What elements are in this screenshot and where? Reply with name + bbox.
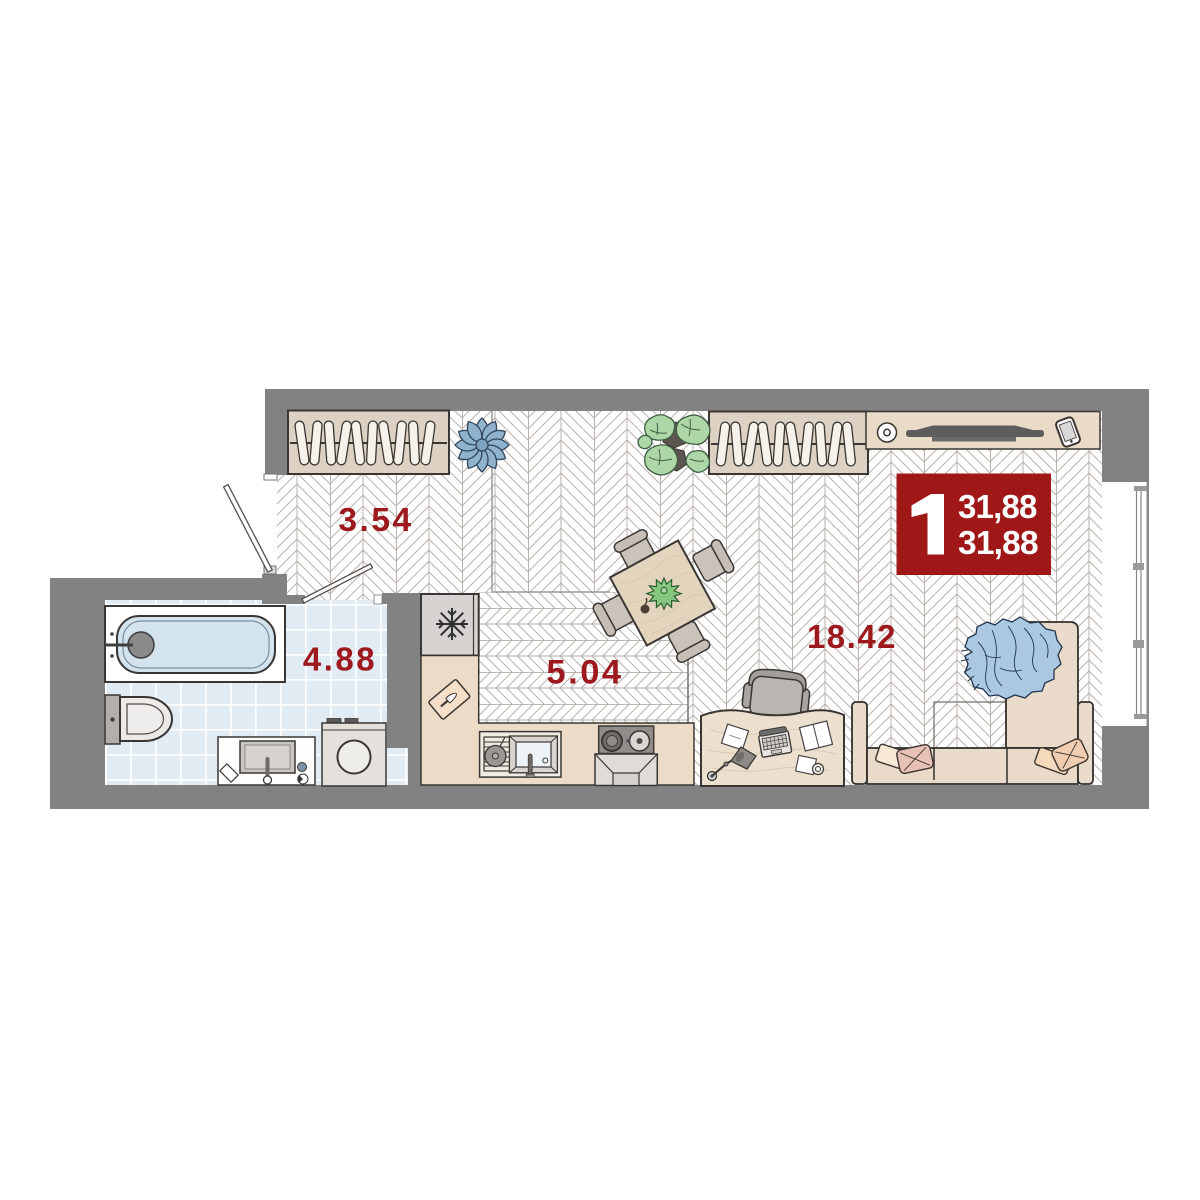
svg-text:31,88: 31,88 [958, 525, 1038, 562]
svg-text:18.42: 18.42 [807, 618, 897, 655]
svg-text:31,88: 31,88 [958, 488, 1037, 525]
svg-text:5.04: 5.04 [546, 654, 623, 692]
svg-text:4.88: 4.88 [303, 641, 377, 678]
svg-text:3.54: 3.54 [338, 502, 413, 539]
